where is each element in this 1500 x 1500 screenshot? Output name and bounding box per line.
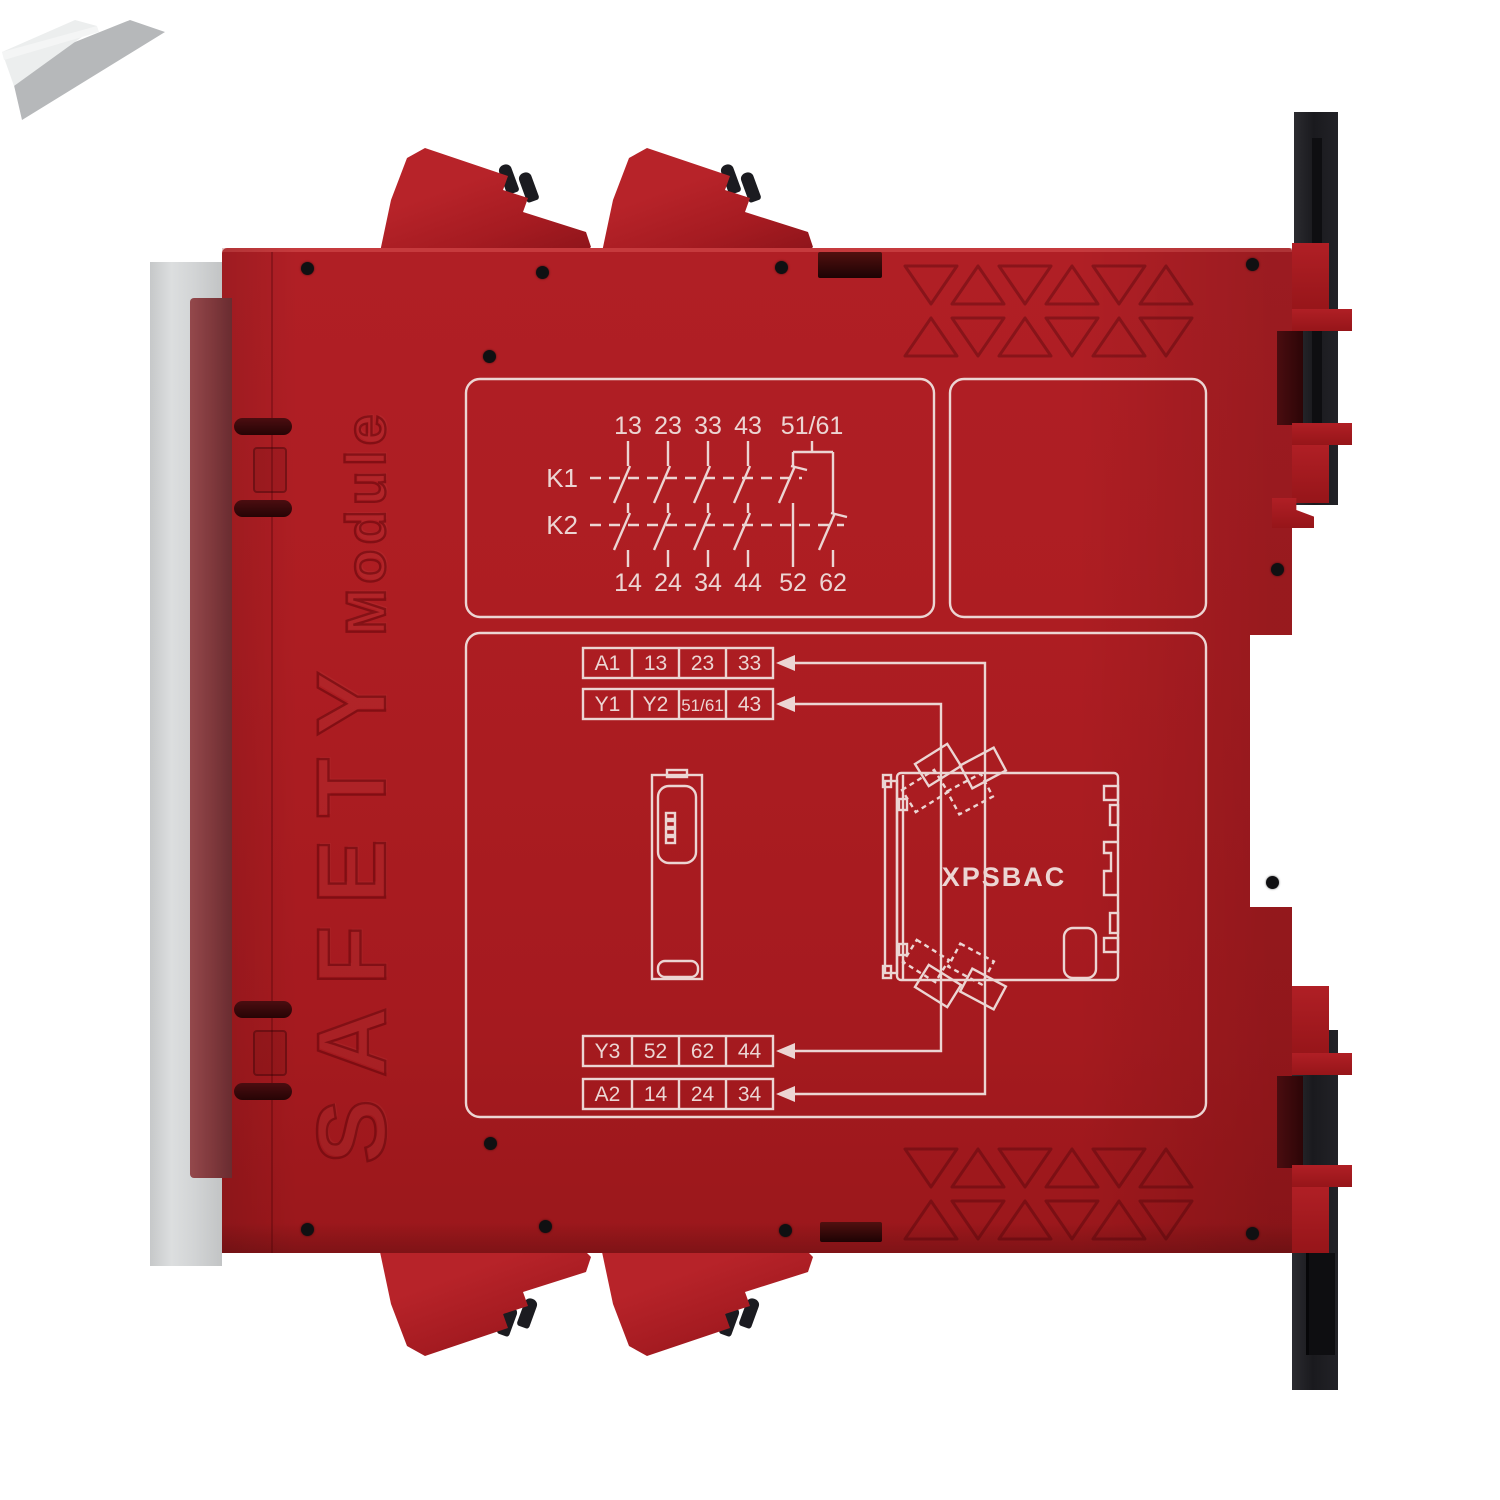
terminal-table-row: A2142434: [583, 1079, 773, 1109]
terminal-number: 33: [694, 412, 722, 440]
table-cell: 52: [644, 1040, 667, 1063]
table-cell: 24: [691, 1083, 715, 1106]
nc-contact-branch: 51/61 52 62: [779, 412, 847, 597]
terminal-table-row: Y1Y251/6143: [583, 689, 773, 719]
table-cell: 51/61: [681, 696, 724, 715]
emboss-triangle: [1093, 266, 1145, 304]
terminal-block-drawing: [652, 770, 702, 979]
module-outline-drawing: XPSBAC: [883, 744, 1118, 1009]
contact-diagram: K1 K2 1314232433344344 51/61: [546, 412, 847, 597]
wiring-diagram-panel: [466, 633, 1206, 1117]
table-cell: Y2: [643, 693, 669, 716]
emboss-triangle: [1140, 1201, 1192, 1239]
emboss-triangle: [952, 318, 1004, 356]
embossed-brand-text: SAFETYModule: [296, 324, 446, 1164]
table-cell: 23: [691, 652, 714, 675]
safety-module-product-photo: K1 K2 1314232433344344 51/61: [0, 0, 1500, 1500]
emboss-triangle: [1046, 1149, 1098, 1187]
terminal-number: 62: [819, 569, 847, 597]
terminal-number: 43: [734, 412, 762, 440]
emboss-triangle: [905, 266, 957, 304]
emboss-triangle: [999, 318, 1051, 356]
emboss-triangle: [1140, 318, 1192, 356]
table-cell: 44: [738, 1040, 762, 1063]
emboss-triangle: [999, 1149, 1051, 1187]
emboss-triangle: [999, 1201, 1051, 1239]
table-cell: 43: [738, 693, 761, 716]
emboss-triangle: [1093, 1149, 1145, 1187]
terminal-number: 34: [694, 569, 722, 597]
module-reference-label: XPSBAC: [942, 862, 1067, 892]
terminal-table-row: Y3526244: [583, 1036, 773, 1066]
table-cell: A2: [595, 1083, 621, 1106]
terminal-number: 51/61: [781, 412, 844, 440]
table-cell: 62: [691, 1040, 714, 1063]
table-cell: Y3: [595, 1040, 621, 1063]
terminal-number: 52: [779, 569, 807, 597]
emboss-triangle: [952, 1149, 1004, 1187]
relay-row-label: K1: [546, 463, 578, 493]
table-cell: 33: [738, 652, 761, 675]
table-cell: A1: [595, 652, 621, 675]
emboss-triangle: [952, 266, 1004, 304]
relay-row-label: K2: [546, 510, 578, 540]
emboss-triangle: [1140, 1149, 1192, 1187]
emboss-triangle: [1046, 266, 1098, 304]
emboss-triangle: [1046, 318, 1098, 356]
terminal-tables: A1132333Y1Y251/6143Y3526244A2142434: [583, 648, 773, 1109]
terminal-number: 23: [654, 412, 682, 440]
emboss-triangle: [905, 318, 957, 356]
terminal-number: 44: [734, 569, 762, 597]
table-cell: 14: [644, 1083, 668, 1106]
terminal-number: 13: [614, 412, 642, 440]
blank-panel: [950, 379, 1206, 617]
terminal-number: 14: [614, 569, 642, 597]
emboss-triangle: [905, 1201, 957, 1239]
table-cell: Y1: [595, 693, 621, 716]
table-cell: 34: [738, 1083, 762, 1106]
printed-artwork: K1 K2 1314232433344344 51/61: [0, 0, 1500, 1500]
emboss-triangle: [999, 266, 1051, 304]
emboss-triangle: [1140, 266, 1192, 304]
embossed-safety-label: SAFETY: [297, 649, 406, 1164]
emboss-triangle: [1093, 318, 1145, 356]
terminal-table-row: A1132333: [583, 648, 773, 678]
emboss-triangle: [905, 1149, 957, 1187]
emboss-triangle: [952, 1201, 1004, 1239]
table-cell: 13: [644, 652, 667, 675]
terminal-number: 24: [654, 569, 682, 597]
emboss-triangle: [1046, 1201, 1098, 1239]
emboss-triangle: [1093, 1201, 1145, 1239]
printed-wiring-art: K1 K2 1314232433344344 51/61: [466, 379, 1206, 1117]
embossed-module-label: Module: [334, 409, 397, 635]
